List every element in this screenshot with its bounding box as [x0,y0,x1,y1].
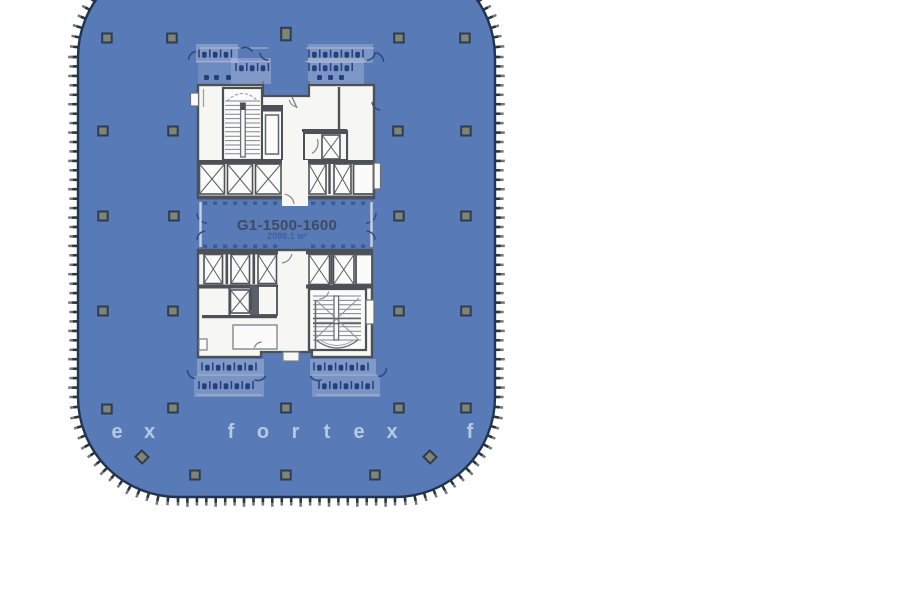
svg-text:t: t [324,421,331,443]
svg-text:f: f [228,421,235,443]
svg-text:f: f [467,421,474,443]
svg-text:e: e [111,421,122,443]
svg-text:r: r [292,421,300,443]
svg-text:e: e [353,421,364,443]
svg-text:x: x [386,421,397,443]
svg-text:2098.1 м²: 2098.1 м² [267,231,307,241]
svg-text:x: x [144,421,155,443]
svg-text:o: o [257,421,269,443]
